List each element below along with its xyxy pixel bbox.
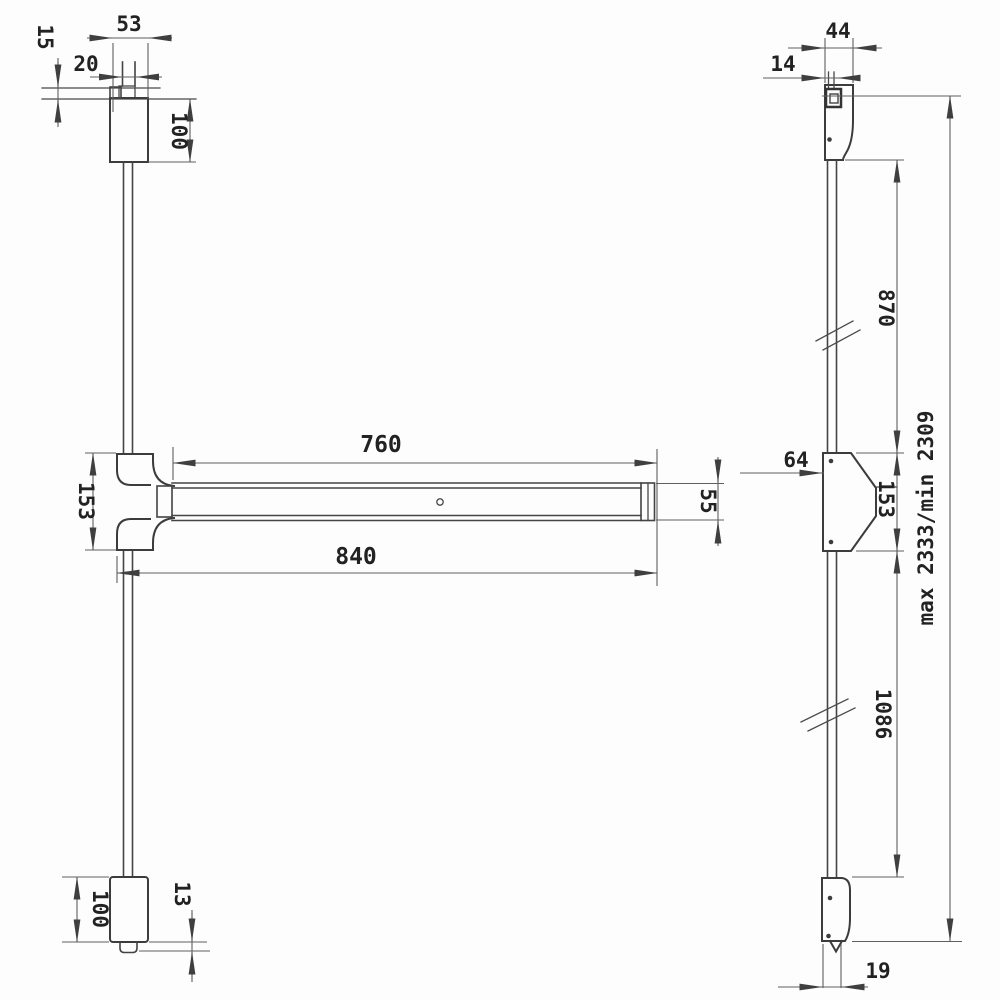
dim-case-height-side: 153	[874, 453, 898, 551]
dim-label-44: 44	[825, 19, 850, 43]
dim-center-case-height: 153	[74, 453, 116, 550]
dim-rod-width: 19	[778, 944, 891, 988]
dim-label-153-front: 153	[74, 482, 98, 520]
bottom-latch-foot	[830, 941, 842, 952]
dim-top-latch-height: 100	[148, 99, 196, 162]
dim-bolt-width: 20	[73, 52, 162, 77]
dim-label-15: 15	[33, 24, 57, 49]
dim-bar-length: 760	[173, 432, 657, 586]
dim-bar-height: 55	[656, 457, 724, 546]
dim-label-870: 870	[874, 289, 898, 327]
side-bottom-latch	[822, 878, 850, 952]
dim-lower-rod: 1086	[852, 551, 904, 877]
dim-overall-height: max 2333/min 2309	[852, 96, 962, 942]
side-top-latch	[825, 72, 853, 160]
dim-label-13: 13	[170, 881, 194, 906]
dim-overall-width: 840	[117, 544, 657, 583]
case-horn-top	[153, 454, 174, 486]
break-mark	[823, 330, 860, 350]
screw-dot	[826, 934, 831, 939]
dim-label-760: 760	[360, 432, 402, 458]
dim-case-offset: 64	[740, 448, 824, 473]
break-mark	[808, 708, 855, 731]
screw-dot	[829, 459, 834, 464]
side-dimensions: 44 14 870 64	[740, 19, 962, 988]
side-view: 44 14 870 64	[740, 19, 962, 988]
front-bottom-latch	[110, 877, 148, 953]
front-dimensions: 53 20 15 100	[33, 12, 724, 982]
dim-label-100-bottom: 100	[88, 890, 112, 928]
dim-label-14: 14	[770, 52, 795, 76]
bottom-latch-foot	[120, 942, 137, 953]
push-bar	[172, 483, 655, 521]
dim-label-1086: 1086	[871, 689, 895, 740]
dim-label-153-side: 153	[874, 480, 898, 518]
bottom-latch-body	[822, 878, 850, 941]
center-case-body	[823, 453, 876, 551]
dim-label-64: 64	[783, 448, 808, 472]
screw-dot	[827, 137, 832, 142]
bar-hole	[437, 499, 443, 505]
screw-dot	[829, 540, 834, 545]
case-horn-bottom	[117, 519, 150, 550]
front-center-case	[117, 454, 174, 550]
dim-label-840: 840	[335, 544, 377, 570]
front-view: 53 20 15 100	[33, 12, 724, 982]
break-mark	[801, 699, 848, 722]
top-latch-case	[110, 98, 148, 162]
dim-label-100-top: 100	[167, 112, 191, 150]
case-horn-top	[117, 454, 150, 485]
dim-bottom-latch-height: 100	[62, 877, 112, 942]
screw-dot	[828, 896, 833, 901]
bar-mount	[157, 486, 172, 517]
dim-label-20: 20	[73, 52, 98, 76]
dim-bolt-depth: 14	[763, 52, 860, 78]
dim-foot-offset: 13	[139, 881, 210, 982]
drawing-sheet: 53 20 15 100	[0, 0, 1000, 1000]
technical-drawing: 53 20 15 100	[0, 0, 1000, 1000]
dim-label-19: 19	[865, 959, 890, 983]
dim-label-55: 55	[696, 488, 720, 513]
latch-hook-notch	[830, 94, 838, 103]
dim-label-53: 53	[116, 12, 141, 36]
dim-latch-depth: 44	[788, 19, 882, 83]
dim-label-maxmin: max 2333/min 2309	[914, 411, 938, 626]
dim-bolt-offset: 15	[33, 24, 58, 127]
break-mark	[816, 321, 853, 341]
side-vertical-rod	[801, 160, 860, 877]
dim-upper-rod: 870	[845, 160, 904, 453]
case-horn-bottom	[153, 518, 174, 550]
bottom-latch-case	[110, 877, 148, 942]
